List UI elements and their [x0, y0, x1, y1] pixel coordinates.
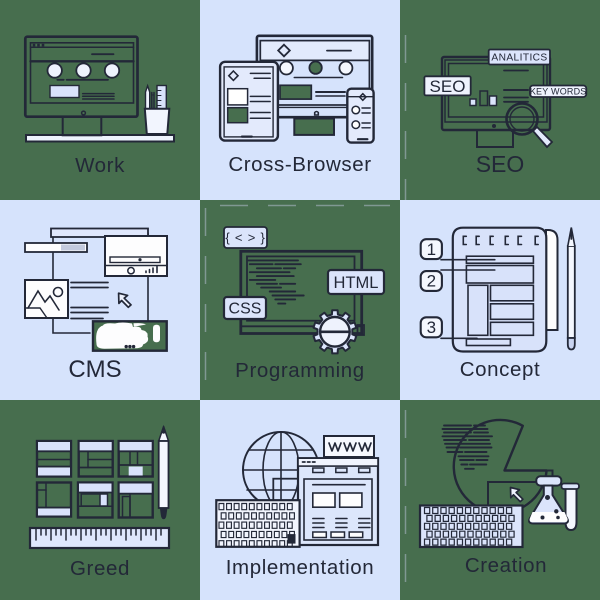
svg-text:Concept: Concept [460, 358, 541, 381]
svg-text:{ < > }: { < > } [225, 230, 265, 245]
svg-text:Greed: Greed [70, 557, 130, 580]
svg-text:Creation: Creation [465, 554, 547, 577]
svg-text:SEO: SEO [476, 151, 525, 177]
svg-text:2: 2 [427, 272, 436, 291]
svg-text:SEO: SEO [430, 77, 466, 96]
svg-text:Implementation: Implementation [226, 556, 375, 579]
svg-text:CSS: CSS [229, 301, 262, 318]
svg-text:Programming: Programming [235, 359, 365, 382]
svg-text:ANALITICS: ANALITICS [491, 53, 547, 64]
svg-text:CMS: CMS [68, 356, 121, 383]
svg-text:1: 1 [427, 240, 436, 259]
svg-text:HTML: HTML [334, 274, 379, 292]
svg-text:Work: Work [75, 154, 125, 177]
svg-text:3: 3 [427, 318, 436, 337]
svg-text:KEY WORDS: KEY WORDS [530, 86, 587, 96]
svg-text:Cross-Browser: Cross-Browser [228, 153, 371, 176]
